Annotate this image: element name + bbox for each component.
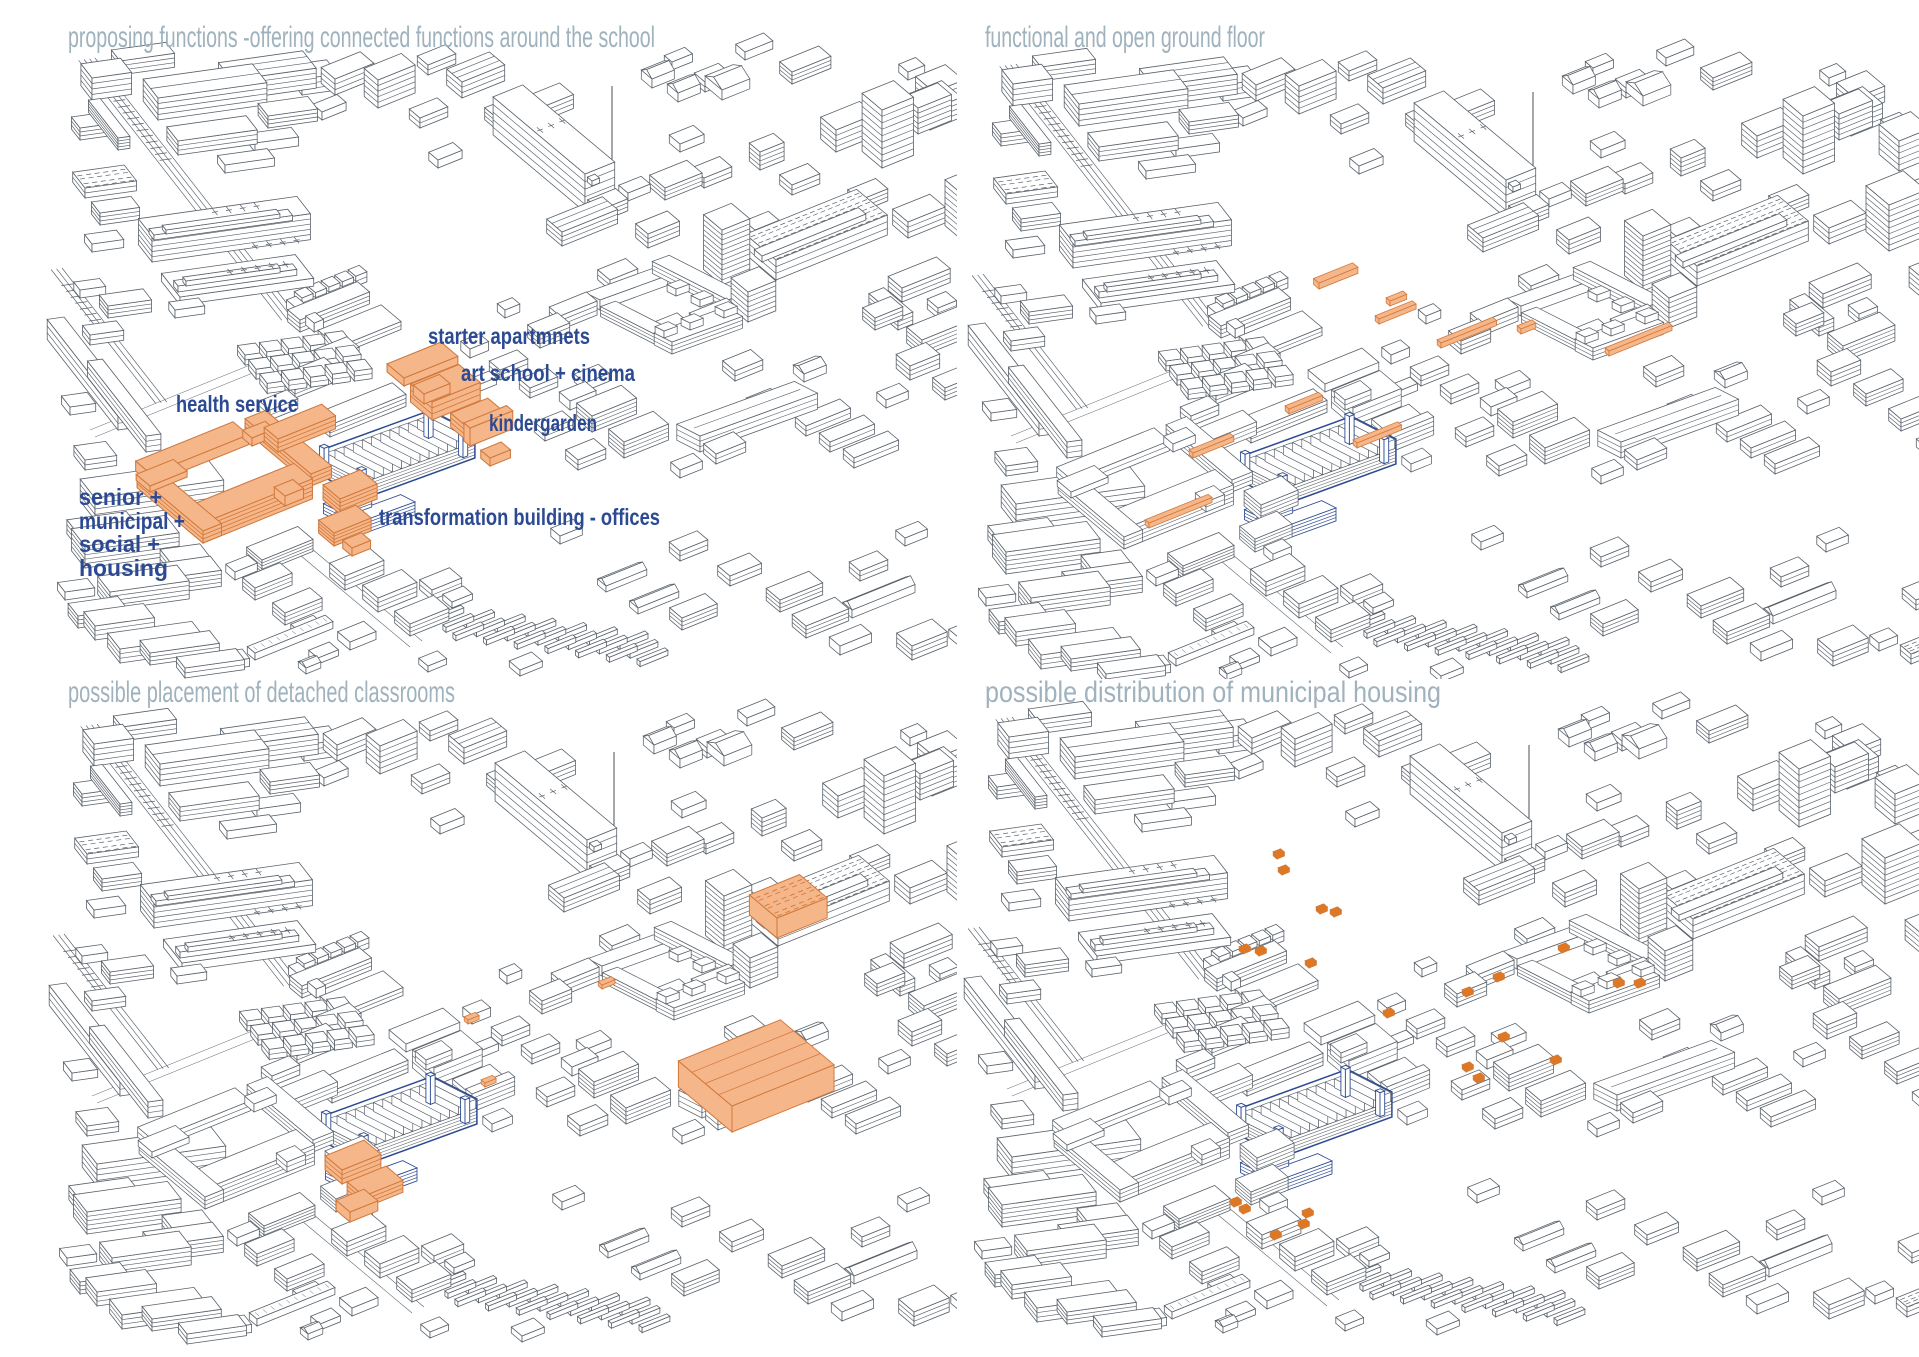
svg-text:functional and open ground flo: functional and open ground floor xyxy=(985,21,1265,54)
svg-text:art school + cinema: art school + cinema xyxy=(461,360,635,386)
svg-text:possible distribution of munic: possible distribution of municipal housi… xyxy=(985,676,1441,709)
svg-text:starter apartmnets: starter apartmnets xyxy=(428,323,590,349)
svg-text:proposing functions -offering: proposing functions -offering connected … xyxy=(68,21,655,54)
svg-text:senior +: senior + xyxy=(79,484,162,510)
svg-text:health service: health service xyxy=(176,391,298,417)
svg-text:kindergarden: kindergarden xyxy=(489,410,597,436)
svg-text:transformation building - offi: transformation building - offices xyxy=(379,504,660,530)
svg-text:social +: social + xyxy=(79,531,160,557)
svg-text:possible placement of detached: possible placement of detached classroom… xyxy=(68,676,455,709)
svg-text:housing: housing xyxy=(79,555,168,581)
